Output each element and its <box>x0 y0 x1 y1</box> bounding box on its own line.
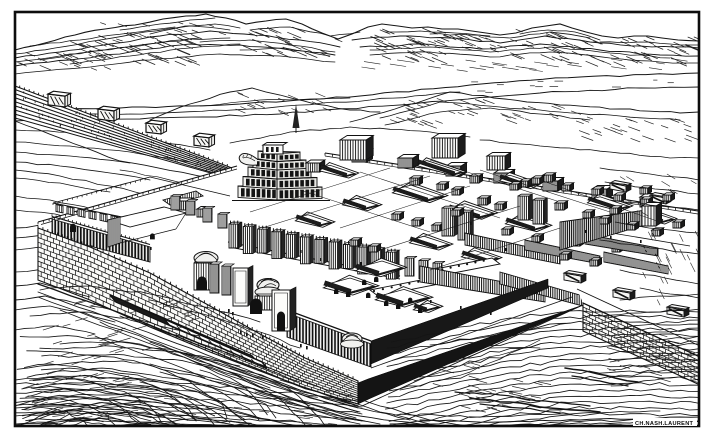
svg-text:CH.NASH.LAURENT: CH.NASH.LAURENT <box>635 421 694 427</box>
